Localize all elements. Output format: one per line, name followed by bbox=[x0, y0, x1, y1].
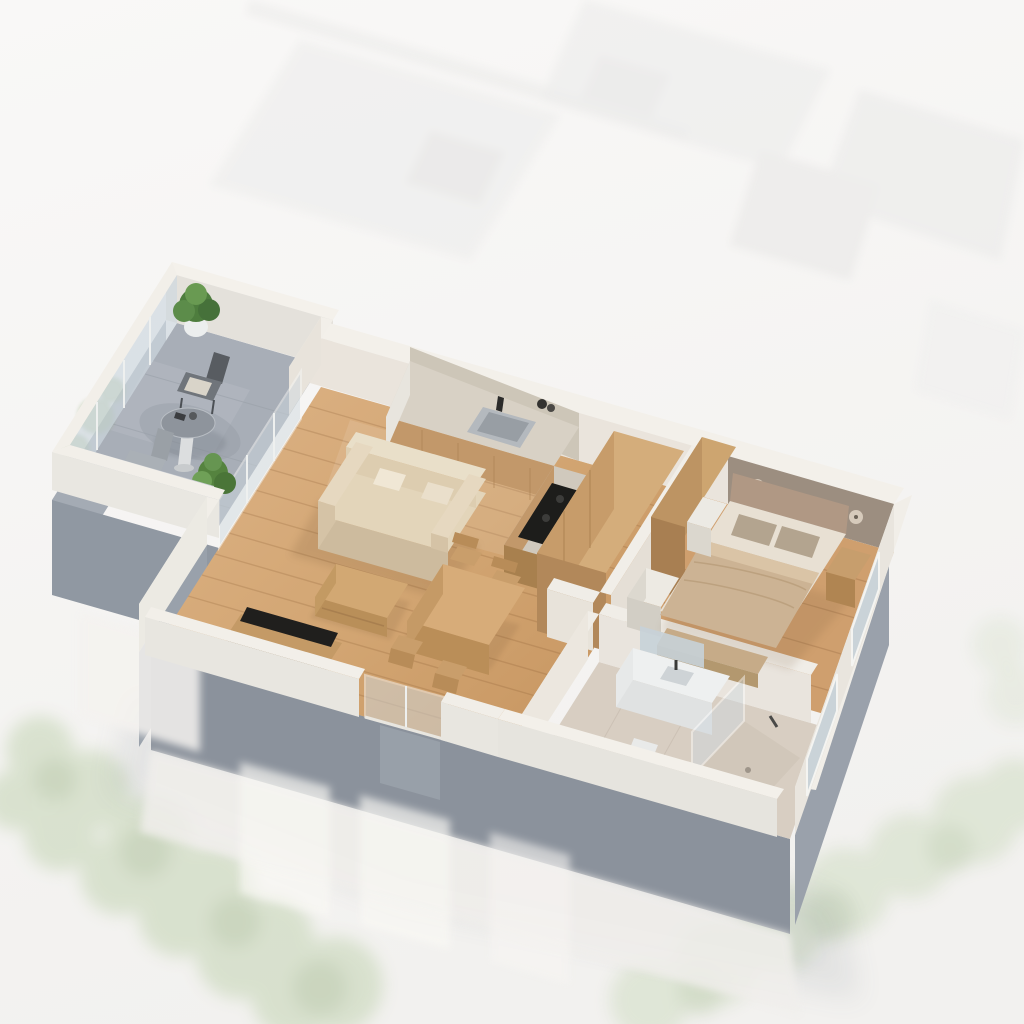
apartment-3d-render bbox=[0, 0, 1024, 1024]
counter-item bbox=[537, 399, 547, 409]
floorplan-render-canvas bbox=[0, 0, 1024, 1024]
